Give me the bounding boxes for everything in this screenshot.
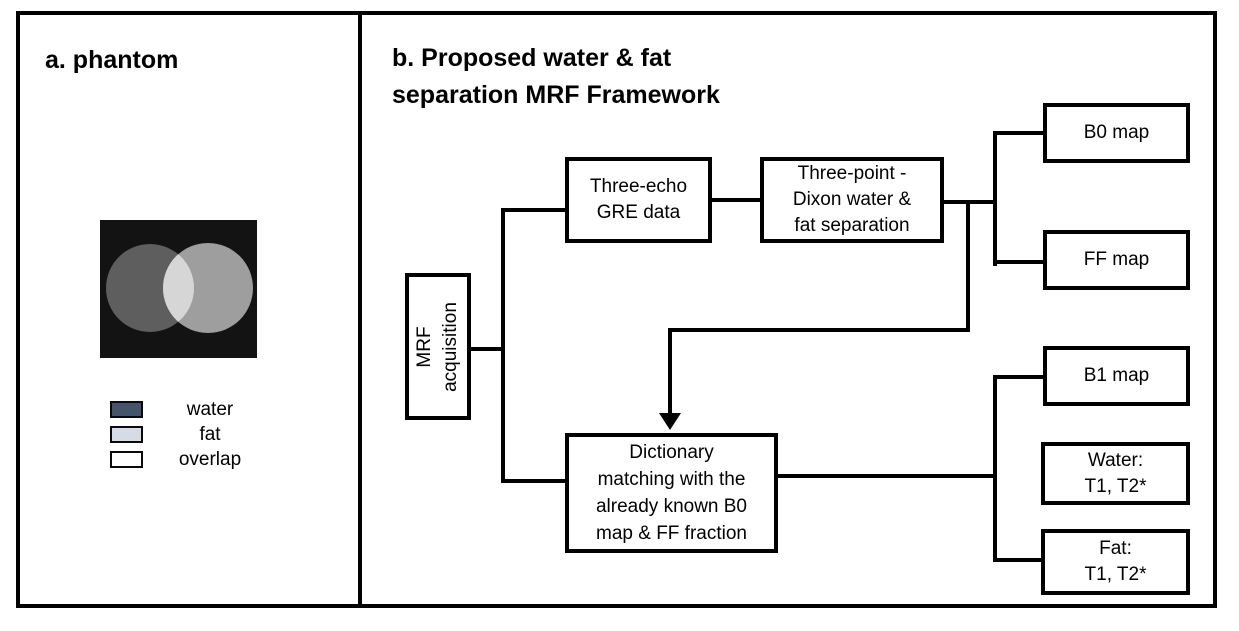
legend-item-fat: fat	[110, 426, 263, 443]
box-dixon-separation: Three-point - Dixon water & fat separati…	[760, 157, 944, 243]
box-three-echo-gre: Three-echo GRE data	[565, 157, 712, 243]
dictionary-line3: already known B0	[596, 493, 747, 520]
three-echo-line2: GRE data	[597, 200, 680, 226]
box-mrf-acquisition: MRF acquisition	[405, 273, 471, 420]
legend-item-water: water	[110, 401, 263, 418]
b1-map-label: B1 map	[1084, 363, 1149, 389]
panel-b-title: b. Proposed water & fat separation MRF F…	[392, 40, 720, 114]
connector-trunk3-vertical	[993, 375, 997, 562]
fat-maps-line2: T1, T2*	[1085, 562, 1147, 588]
panel-a-title: a. phantom	[45, 42, 178, 79]
legend-label-overlap: overlap	[157, 450, 263, 469]
connector-to-three-echo	[501, 208, 565, 212]
phantom-legend: water fat overlap	[110, 401, 263, 476]
three-echo-line1: Three-echo	[590, 174, 687, 200]
connector-feedback-vertical	[668, 328, 672, 414]
dixon-line1: Three-point -	[798, 161, 907, 187]
legend-item-overlap: overlap	[110, 451, 263, 468]
panel-b-title-line2: separation MRF Framework	[392, 77, 720, 114]
water-color-swatch	[110, 401, 143, 418]
box-b0-map: B0 map	[1043, 103, 1190, 163]
legend-label-water: water	[157, 400, 263, 419]
dictionary-line1: Dictionary	[629, 439, 713, 466]
connector-three-echo-to-dixon	[712, 198, 760, 202]
box-water-maps: Water: T1, T2*	[1041, 442, 1190, 505]
b0-map-label: B0 map	[1084, 120, 1149, 146]
overlap-color-swatch	[110, 451, 143, 468]
connector-to-dictionary	[501, 479, 565, 483]
connector-to-b0-map	[993, 131, 1043, 135]
box-mrf-acquisition-text: MRF acquisition	[412, 302, 464, 392]
mrf-line1: MRF	[412, 302, 438, 392]
legend-label-fat: fat	[157, 425, 263, 444]
connector-trunk2-vertical	[993, 131, 997, 266]
water-maps-line2: T1, T2*	[1085, 474, 1147, 500]
box-ff-map: FF map	[1043, 230, 1190, 290]
fat-color-swatch	[110, 426, 143, 443]
connector-feedback-drop	[966, 200, 970, 332]
dictionary-line4: map & FF fraction	[596, 520, 747, 547]
water-maps-line1: Water:	[1088, 448, 1143, 474]
box-fat-maps: Fat: T1, T2*	[1041, 529, 1190, 595]
connector-to-ff-map	[993, 260, 1043, 264]
ff-map-label: FF map	[1084, 247, 1149, 273]
connector-feedback-horizontal	[668, 328, 970, 332]
connector-dixon-output	[943, 200, 997, 204]
phantom-image	[100, 220, 257, 358]
arrowhead-into-dictionary-icon	[659, 413, 681, 430]
dixon-line3: fat separation	[794, 213, 909, 239]
mrf-line2: acquisition	[438, 302, 464, 392]
dictionary-line2: matching with the	[598, 466, 746, 493]
figure-canvas: a. phantom water fat overlap b. Proposed…	[0, 0, 1239, 631]
dixon-line2: Dixon water &	[793, 187, 911, 213]
fat-maps-line1: Fat:	[1099, 536, 1132, 562]
connector-mrf-output	[471, 347, 505, 351]
box-dictionary-matching: Dictionary matching with the already kno…	[565, 433, 778, 553]
connector-to-b1-map	[993, 375, 1043, 379]
connector-dictionary-output	[778, 474, 997, 478]
panel-b-title-line1: b. Proposed water & fat	[392, 40, 720, 77]
connector-to-fat-maps	[993, 558, 1043, 562]
box-b1-map: B1 map	[1043, 346, 1190, 406]
connector-trunk1-vertical	[501, 208, 505, 483]
